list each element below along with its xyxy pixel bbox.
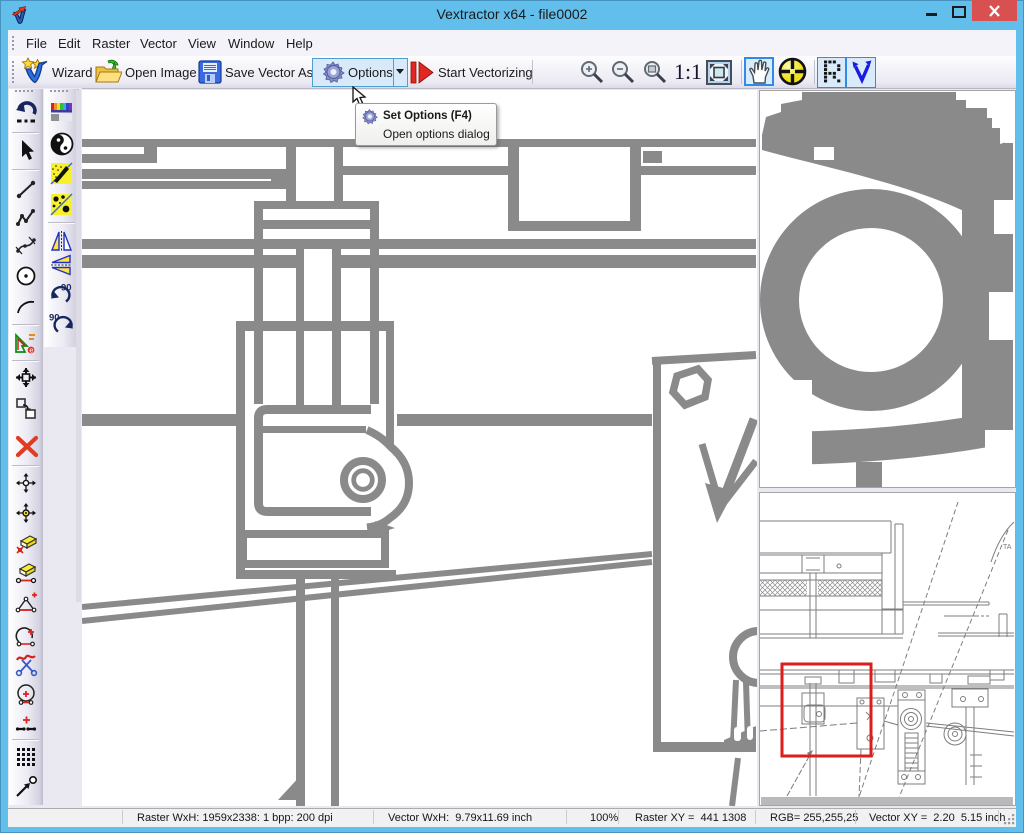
svg-text:90: 90 bbox=[49, 313, 60, 324]
svg-text:e: e bbox=[29, 346, 33, 355]
svg-text:TA: TA bbox=[1003, 544, 1012, 551]
svg-text:90: 90 bbox=[61, 283, 72, 294]
